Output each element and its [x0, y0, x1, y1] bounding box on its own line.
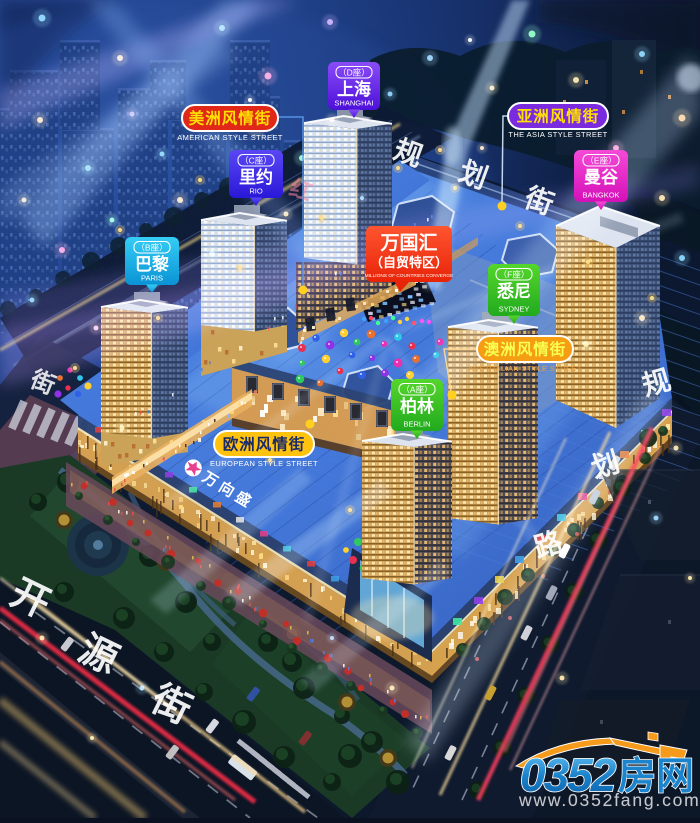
svg-text:上海: 上海 — [337, 79, 371, 99]
svg-text:MILLIONS OF COUNTRIES CONVERGE: MILLIONS OF COUNTRIES CONVERGE — [365, 273, 454, 279]
svg-text:巴黎: 巴黎 — [135, 254, 169, 274]
svg-text:RIO: RIO — [249, 187, 263, 196]
svg-text:澳洲风情街: 澳洲风情街 — [484, 340, 567, 359]
svg-text:柏林: 柏林 — [400, 396, 434, 416]
svg-text:AMERICAN STYLE STREET: AMERICAN STYLE STREET — [177, 133, 283, 142]
svg-text:PARIS: PARIS — [141, 274, 163, 283]
svg-text:SYDNEY: SYDNEY — [499, 305, 530, 314]
svg-text:（自贸特区）: （自贸特区） — [370, 255, 448, 270]
svg-text:（F座）: （F座） — [499, 270, 530, 280]
svg-text:EUROPEAN STYLE STREET: EUROPEAN STYLE STREET — [210, 459, 318, 468]
svg-text:（A座）: （A座） — [401, 385, 432, 395]
svg-text:万国汇: 万国汇 — [379, 232, 437, 254]
svg-text:AUSTRALIAN STYLE STREET: AUSTRALIAN STYLE STREET — [468, 364, 582, 373]
svg-text:（C座）: （C座） — [240, 156, 272, 166]
svg-text:（D座）: （D座） — [338, 68, 370, 78]
svg-text:SHANGHAI: SHANGHAI — [334, 99, 373, 108]
svg-text:亚洲风情街: 亚洲风情街 — [517, 107, 600, 126]
svg-text:（E座）: （E座） — [585, 156, 616, 166]
svg-text:曼谷: 曼谷 — [584, 168, 619, 187]
svg-text:欧洲风情街: 欧洲风情街 — [223, 435, 306, 454]
svg-text:美洲风情街: 美洲风情街 — [189, 109, 272, 128]
svg-text:BANGKOK: BANGKOK — [582, 191, 619, 200]
svg-text:里约: 里约 — [239, 167, 273, 187]
svg-text:（B座）: （B座） — [136, 243, 167, 253]
svg-text:BERLIN: BERLIN — [403, 420, 430, 429]
svg-text:THE ASIA STYLE STREET: THE ASIA STYLE STREET — [508, 130, 607, 139]
svg-text:悉尼: 悉尼 — [496, 282, 531, 301]
svg-text:www.0352fang.com: www.0352fang.com — [518, 790, 700, 810]
